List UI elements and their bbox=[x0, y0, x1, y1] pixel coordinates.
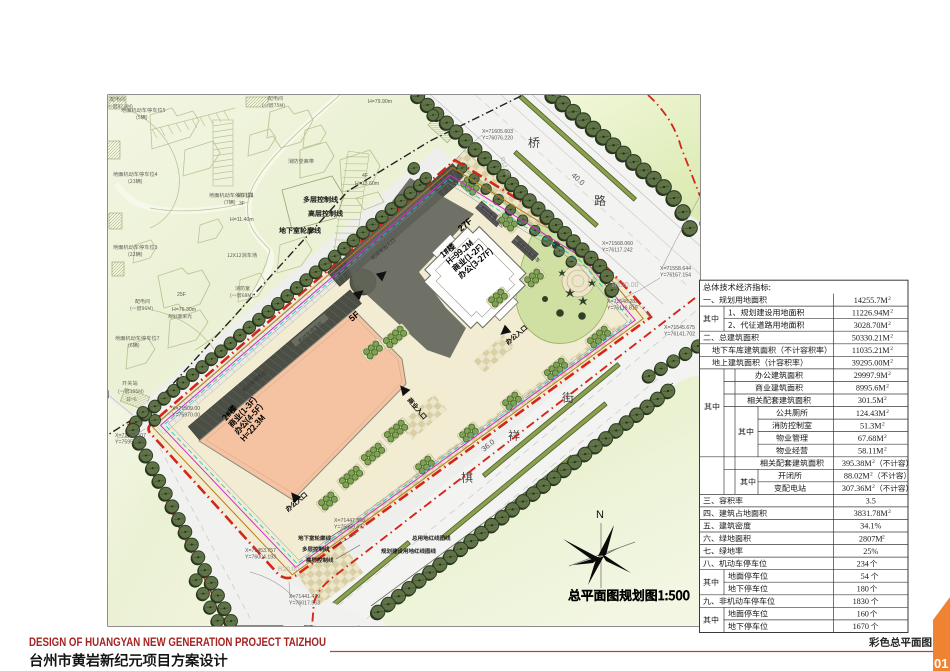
svg-text:X=71509.00: X=71509.00 bbox=[172, 406, 200, 412]
svg-text:X=71447.568: X=71447.568 bbox=[334, 518, 365, 524]
svg-text:2: 2 bbox=[884, 396, 887, 402]
svg-text:2: 2 bbox=[890, 333, 893, 339]
svg-text:2: 2 bbox=[890, 359, 893, 365]
svg-text:Y=76076.220: Y=76076.220 bbox=[482, 136, 513, 142]
svg-text:58.11M: 58.11M bbox=[858, 446, 884, 455]
svg-text:R20.00: R20.00 bbox=[278, 566, 299, 573]
svg-text:25%: 25% bbox=[863, 547, 878, 556]
svg-text:2: 2 bbox=[886, 384, 889, 390]
svg-text:234: 234 bbox=[857, 559, 869, 568]
svg-text:25F: 25F bbox=[177, 292, 186, 298]
svg-text:29997.9M: 29997.9M bbox=[854, 371, 889, 380]
svg-text:3831.78M: 3831.78M bbox=[854, 509, 889, 518]
svg-text:11226.94M: 11226.94M bbox=[852, 308, 890, 317]
svg-text:DESIGN OF HUANGYAN NEW GENERAT: DESIGN OF HUANGYAN NEW GENERATION PROJEC… bbox=[29, 637, 326, 649]
svg-text:2: 2 bbox=[888, 371, 891, 377]
svg-text:R120.00: R120.00 bbox=[612, 282, 639, 289]
svg-text:3F: 3F bbox=[239, 201, 245, 207]
svg-text:2: 2 bbox=[882, 421, 885, 427]
svg-text:3.5: 3.5 bbox=[866, 497, 876, 506]
svg-text:2: 2 bbox=[870, 472, 873, 478]
svg-text:Y=76004.193: Y=76004.193 bbox=[245, 555, 276, 561]
svg-text:2: 2 bbox=[872, 459, 875, 465]
svg-text:39295.00M: 39295.00M bbox=[852, 359, 891, 368]
svg-text:Y=76116.819: Y=76116.819 bbox=[607, 306, 638, 312]
svg-text:34.1%: 34.1% bbox=[860, 522, 881, 531]
svg-text:50330.21M: 50330.21M bbox=[852, 333, 891, 342]
svg-text:X=71548.289: X=71548.289 bbox=[607, 299, 638, 305]
svg-text:Y=76141.702: Y=76141.702 bbox=[664, 332, 695, 338]
svg-text:H=13.60m: H=13.60m bbox=[355, 181, 379, 187]
svg-text:2: 2 bbox=[888, 321, 891, 327]
svg-text:2: 2 bbox=[884, 434, 887, 440]
svg-text:51.3M: 51.3M bbox=[860, 421, 882, 430]
svg-text:1830: 1830 bbox=[853, 597, 869, 606]
svg-text:X=71568.060: X=71568.060 bbox=[602, 241, 633, 247]
svg-text:Y=76017.563: Y=76017.563 bbox=[289, 601, 320, 607]
svg-text:180: 180 bbox=[857, 584, 869, 593]
svg-text:14255.7M: 14255.7M bbox=[854, 296, 889, 305]
svg-text:H=11.40m: H=11.40m bbox=[230, 217, 254, 223]
svg-text:395.38M: 395.38M bbox=[842, 459, 873, 468]
svg-text:3028.70M: 3028.70M bbox=[854, 321, 889, 330]
svg-text:160: 160 bbox=[857, 610, 869, 619]
svg-text:8995.6M: 8995.6M bbox=[856, 384, 887, 393]
svg-text:H=76.30m: H=76.30m bbox=[172, 307, 196, 313]
svg-text:2: 2 bbox=[890, 308, 893, 314]
svg-text:2: 2 bbox=[888, 296, 891, 302]
svg-text:2: 2 bbox=[886, 409, 889, 415]
svg-text:X=71441.479: X=71441.479 bbox=[289, 594, 320, 600]
svg-text:X=71605.603: X=71605.603 bbox=[482, 129, 513, 135]
svg-text:67.68M: 67.68M bbox=[858, 434, 884, 443]
svg-text:X=71453.757: X=71453.757 bbox=[245, 548, 276, 554]
svg-text:4F: 4F bbox=[362, 173, 368, 179]
svg-text:Y=75969.677: Y=75969.677 bbox=[334, 525, 365, 531]
svg-text:2: 2 bbox=[888, 509, 891, 515]
svg-text:H=79.90m: H=79.90m bbox=[368, 99, 392, 105]
svg-text:1670: 1670 bbox=[853, 622, 869, 631]
svg-text:X=71558.644: X=71558.644 bbox=[660, 266, 691, 272]
svg-text:X=71545.675: X=71545.675 bbox=[664, 325, 695, 331]
svg-text:Y=75952.282: Y=75952.282 bbox=[115, 440, 146, 446]
svg-text:Y=76117.242: Y=76117.242 bbox=[602, 248, 633, 254]
svg-text:2807M: 2807M bbox=[859, 534, 883, 543]
svg-text:2: 2 bbox=[890, 346, 893, 352]
svg-text:01: 01 bbox=[934, 656, 948, 671]
svg-text:N: N bbox=[596, 509, 604, 521]
svg-text:Y=76157.154: Y=76157.154 bbox=[660, 273, 691, 279]
svg-text:2: 2 bbox=[884, 446, 887, 452]
svg-text:124.43M: 124.43M bbox=[856, 409, 887, 418]
svg-text:88.02M: 88.02M bbox=[844, 472, 870, 481]
svg-text:X=71501.507: X=71501.507 bbox=[115, 433, 146, 439]
svg-text:2: 2 bbox=[882, 534, 885, 540]
svg-text:2: 2 bbox=[872, 484, 875, 490]
svg-text:Y=75970.00: Y=75970.00 bbox=[172, 413, 200, 419]
svg-text:11035.21M: 11035.21M bbox=[852, 346, 890, 355]
svg-text:307.36M: 307.36M bbox=[842, 484, 873, 493]
svg-text:54: 54 bbox=[861, 572, 869, 581]
svg-text:301.5M: 301.5M bbox=[858, 396, 884, 405]
